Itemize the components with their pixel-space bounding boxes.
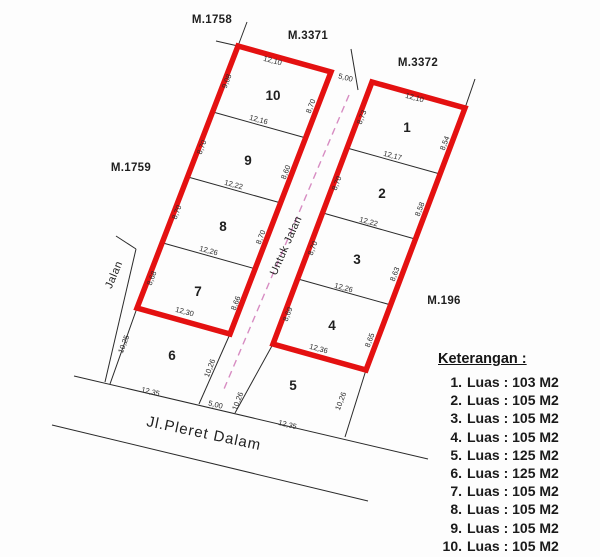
dim-gap-top: 5,00 — [337, 71, 353, 83]
legend-item-area: Luas : 105 M2 — [467, 409, 559, 427]
plot-5-number: 5 — [289, 378, 297, 393]
legend-item-number: 3. — [438, 409, 462, 427]
dim-p5-left: 10,26 — [230, 391, 245, 412]
legend-item-number: 7. — [438, 482, 462, 500]
dim-3-4: 12,26 — [333, 281, 353, 295]
marker-m3372: M.3372 — [398, 57, 438, 69]
legend-item: 2.Luas : 105 M2 — [438, 391, 596, 409]
dim-p9-left: 8,70 — [195, 139, 209, 156]
legend-item: 3.Luas : 105 M2 — [438, 409, 596, 427]
plot5-right-line — [345, 370, 366, 437]
legend-item-area: Luas : 125 M2 — [467, 464, 559, 482]
tick-topleft-stub — [216, 41, 238, 46]
legend-item-number: 4. — [438, 428, 462, 446]
legend-item: 9.Luas : 105 M2 — [438, 519, 596, 537]
marker-m1759: M.1759 — [111, 162, 151, 174]
legend-item: 6.Luas : 125 M2 — [438, 464, 596, 482]
plot-7-number: 7 — [194, 284, 202, 299]
dim-p10-left: 9,08 — [220, 73, 234, 90]
plot-4-number: 4 — [328, 318, 336, 333]
legend-item-area: Luas : 103 M2 — [467, 373, 559, 391]
tick-strip-top — [351, 49, 358, 90]
plot-9-number: 9 — [244, 153, 252, 168]
legend-item: 7.Luas : 105 M2 — [438, 482, 596, 500]
legend-item-area: Luas : 105 M2 — [467, 537, 559, 555]
dim-p6-bottom: 12,35 — [140, 385, 160, 398]
dim-p1-top: 12,10 — [404, 91, 424, 105]
tick-jalan-top — [116, 236, 136, 249]
jalan-strip-label: Jalan — [103, 259, 125, 290]
legend: Keterangan : 1.Luas : 103 M2 2.Luas : 10… — [438, 351, 596, 555]
legend-item-number: 2. — [438, 391, 462, 409]
dim-p7-bottom: 12,30 — [174, 305, 194, 319]
legend-item-area: Luas : 105 M2 — [467, 391, 559, 409]
legend-item-area: Luas : 105 M2 — [467, 482, 559, 500]
dim-p5-bottom: 12,35 — [277, 418, 297, 431]
dim-p3-left: 8,70 — [306, 240, 320, 257]
dim-p4-left: 8,69 — [281, 306, 295, 323]
legend-item-number: 10. — [438, 537, 462, 555]
marker-m3371: M.3371 — [288, 30, 328, 42]
plot-3-number: 3 — [353, 252, 361, 267]
jl-pleret-dalam-label: Jl.Pleret Dalam — [145, 413, 263, 454]
dim-p1-left: 8,73 — [355, 109, 369, 126]
dim-p8-left: 8,70 — [170, 204, 184, 221]
tick-m1758 — [238, 22, 247, 46]
legend-title: Keterangan : — [438, 351, 596, 367]
dim-gap-bottom: 5,00 — [207, 398, 223, 410]
legend-item-area: Luas : 105 M2 — [467, 428, 559, 446]
plot-1-number: 1 — [403, 120, 411, 135]
site-plan-page: M.1758 M.3371 M.3372 M.1759 M.196 1 2 3 … — [0, 0, 600, 557]
marker-m1758: M.1758 — [192, 14, 232, 26]
legend-item: 1.Luas : 103 M2 — [438, 373, 596, 391]
marker-m196: M.196 — [427, 295, 460, 307]
legend-item-number: 9. — [438, 519, 462, 537]
legend-item-area: Luas : 125 M2 — [467, 446, 559, 464]
tick-topright — [465, 79, 475, 108]
legend-item-number: 8. — [438, 500, 462, 518]
plot-2-number: 2 — [378, 186, 386, 201]
legend-item-area: Luas : 105 M2 — [467, 500, 559, 518]
dim-p5-right: 10,26 — [333, 391, 348, 412]
plot-6-number: 6 — [168, 348, 176, 363]
legend-item-number: 1. — [438, 373, 462, 391]
dim-p6-left: 10,25 — [116, 334, 131, 355]
legend-item: 8.Luas : 105 M2 — [438, 500, 596, 518]
dim-p7-left: 8,68 — [145, 270, 159, 287]
legend-item-number: 6. — [438, 464, 462, 482]
dim-p2-left: 8,70 — [330, 175, 344, 192]
legend-item-area: Luas : 105 M2 — [467, 519, 559, 537]
legend-item-number: 5. — [438, 446, 462, 464]
legend-item: 5.Luas : 125 M2 — [438, 446, 596, 464]
plot-8-number: 8 — [219, 219, 227, 234]
legend-item: 10.Luas : 105 M2 — [438, 537, 596, 555]
legend-item: 4.Luas : 105 M2 — [438, 428, 596, 446]
plot-10-number: 10 — [265, 88, 280, 103]
